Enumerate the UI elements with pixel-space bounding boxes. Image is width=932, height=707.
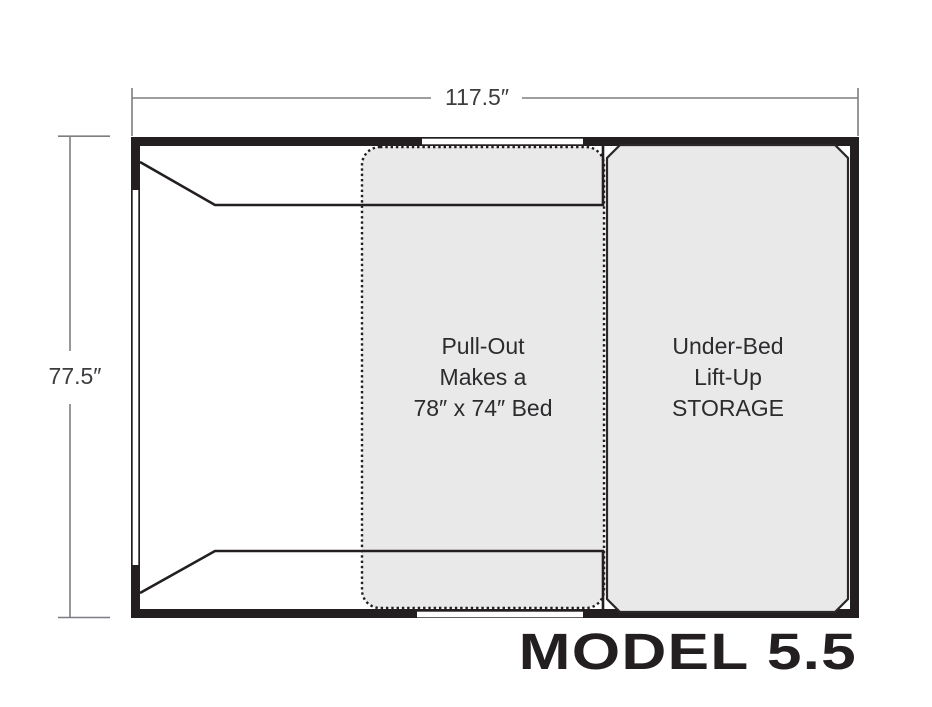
pullout-label: Pull-Out Makes a 78″ x 74″ Bed <box>362 331 604 424</box>
top-wall-window <box>422 139 583 145</box>
storage-label-line1: Under-Bed <box>606 331 850 362</box>
pullout-label-line2: Makes a <box>362 362 604 393</box>
pullout-label-line1: Pull-Out <box>362 331 604 362</box>
left-wall-window <box>133 190 139 565</box>
height-dimension-label: 77.5″ <box>25 363 125 390</box>
width-dimension-label: 117.5″ <box>407 84 547 111</box>
storage-label: Under-Bed Lift-Up STORAGE <box>606 331 850 424</box>
bottom-wall-window <box>417 612 583 618</box>
model-title: MODEL 5.5 <box>421 629 857 675</box>
floorplan-canvas: 117.5″ 77.5″ Pull-Out Makes a 78″ x 74″ … <box>0 0 932 707</box>
storage-label-line3: STORAGE <box>606 393 850 424</box>
pullout-label-line3: 78″ x 74″ Bed <box>362 393 604 424</box>
storage-label-line2: Lift-Up <box>606 362 850 393</box>
